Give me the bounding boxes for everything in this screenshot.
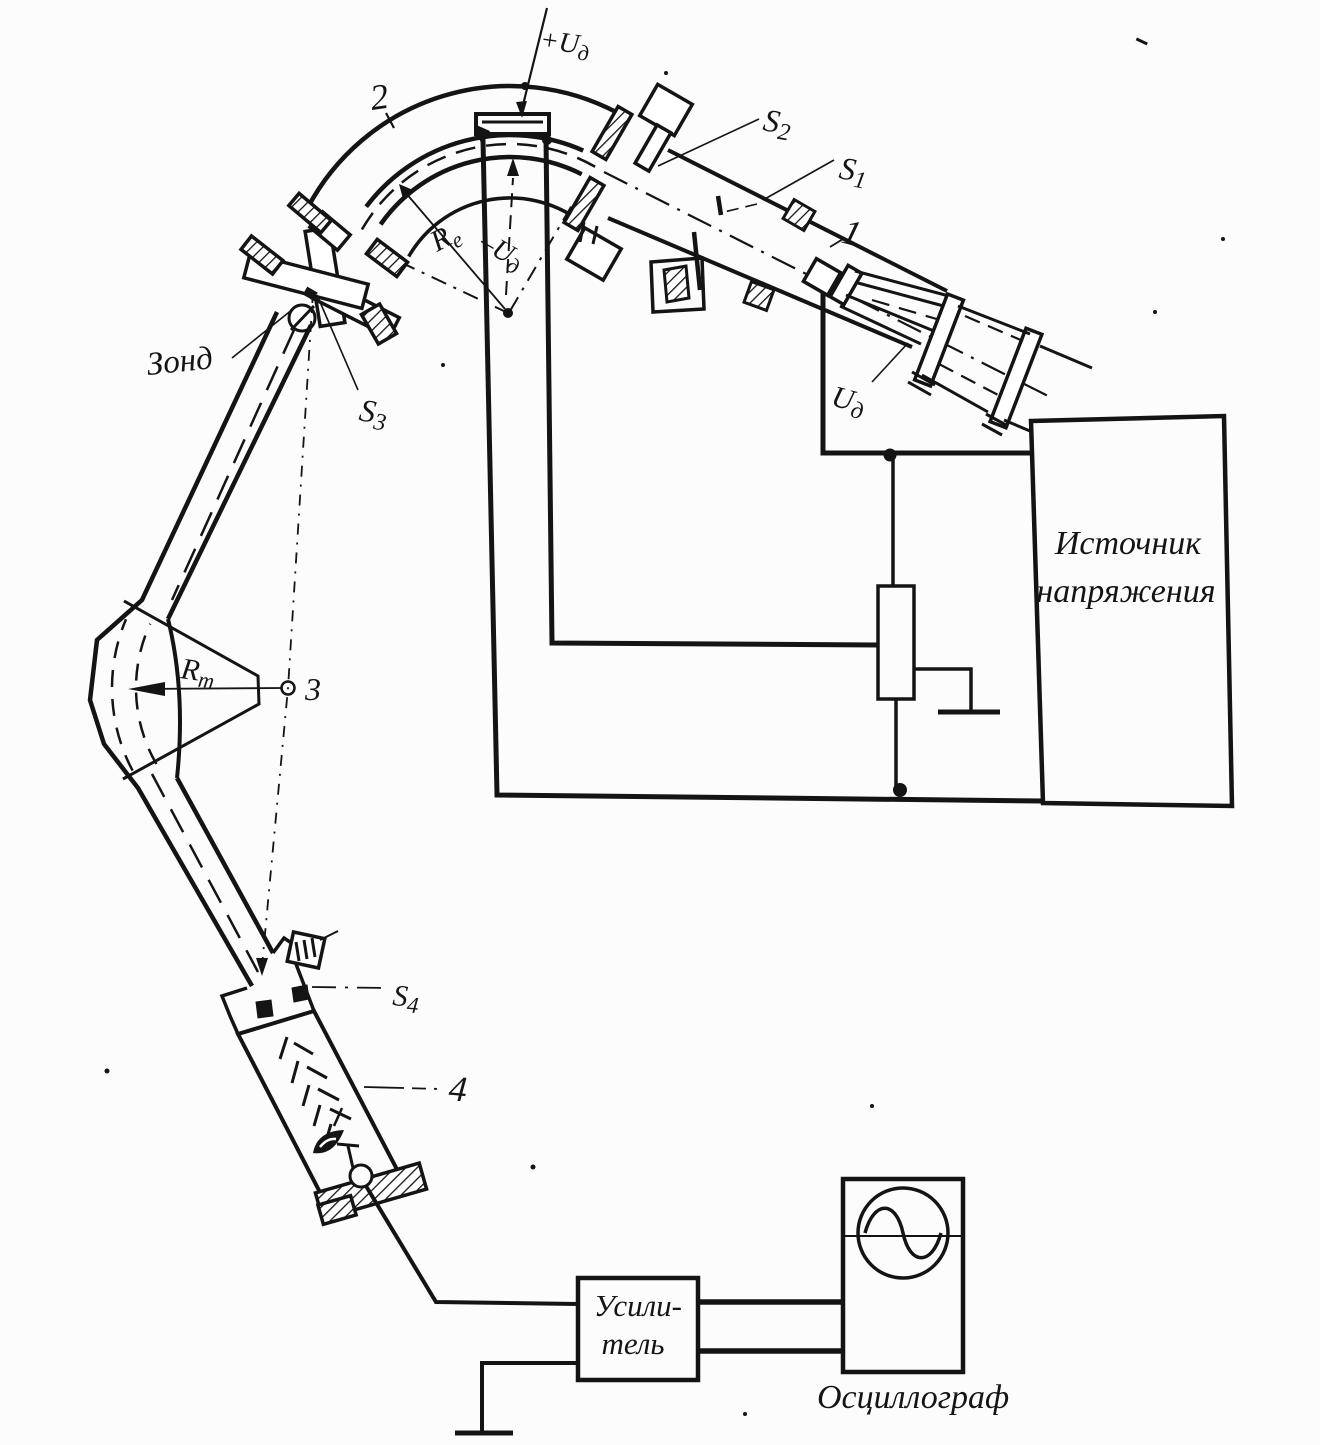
svg-text:напряжения: напряжения xyxy=(1036,573,1215,610)
svg-text:Зонд: Зонд xyxy=(145,340,214,383)
svg-text:Осциллограф: Осциллограф xyxy=(817,1379,1009,1416)
svg-text:Источник: Источник xyxy=(1054,525,1202,562)
svg-text:Усили-: Усили- xyxy=(594,1288,682,1323)
svg-text:3: 3 xyxy=(304,671,321,707)
svg-text:4: 4 xyxy=(447,1068,468,1109)
svg-text:тель: тель xyxy=(602,1326,665,1361)
